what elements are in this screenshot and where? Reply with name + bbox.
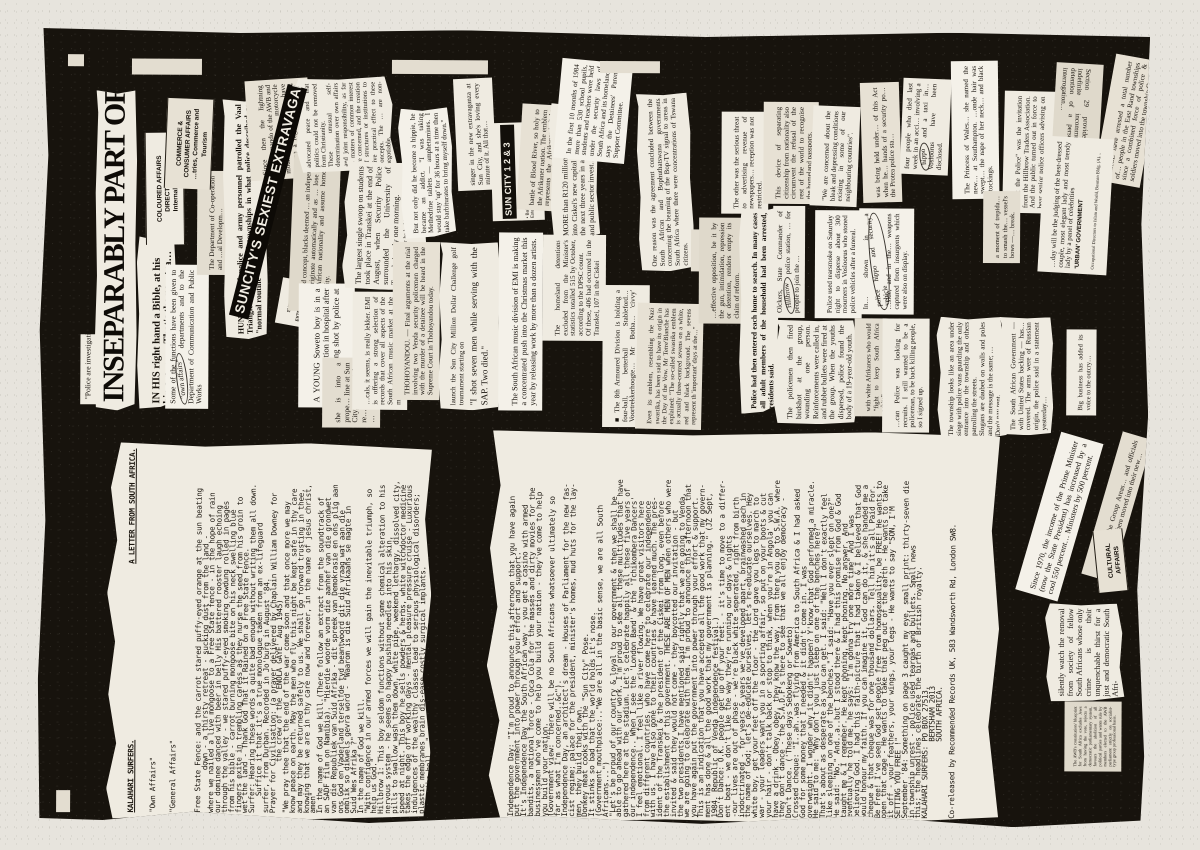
clipping-renders-empty: …effective opposition, be it by the gun,… [699, 217, 747, 323]
singer-extravaganza-text: singer in the new extravaganza at Sun Ci… [464, 83, 492, 186]
separating-citizenship-text: This device of separating citizenship fr… [774, 107, 814, 199]
letter-header: KALAHARI SURFERS.A LETTER FROM SOUTH AFR… [128, 448, 137, 812]
clipping-commerce-affairs-label: COMMERCE & CONSUMER AFFAIRS …tries, Comm… [164, 98, 214, 190]
thohoyandou-text: THOHOYANDOU. — Final arguments at the tr… [403, 247, 435, 395]
clipping-trepidation: a moment of trepida… to smash the… vesse… [983, 191, 1020, 263]
clipping-hippie-addict: But not only did he become a hippie, he … [397, 107, 456, 239]
advocated-peace-text: advocated peace and that politics could … [304, 81, 393, 167]
clipping-russian-arms: The South African Government — with Unit… [998, 317, 1054, 435]
clipping-olckers-hillbrow: Olckers, State Commander of Hillbrow pol… [773, 206, 806, 318]
suncity-123-bar: SUN CITY 1 2 & 3 [500, 125, 517, 219]
clipping-birdshot: The policemen then fired birdshot at the… [774, 320, 858, 424]
torn-scrap [600, 61, 660, 73]
clipping-cultural-affairs-label: CULTURAL AFFAIRS [1092, 528, 1128, 593]
clipping-main-headline: INSEPARABLY PART OF YOUR LIFE [94, 90, 138, 410]
letter-sub-general-affairs: "General Affairs" [170, 449, 179, 813]
russian-arms-text: The South African Government — with Unit… [1009, 322, 1048, 430]
we-are-concerned-text: "We are concerned about the bleak and de… [821, 111, 855, 202]
scanned-collage-page: { "artwork": { "headline": "INSEPARABLY … [0, 0, 1200, 850]
letter-band-name: KALAHARI SURFERS. [128, 740, 135, 813]
clipping-big-business: Big business has added its voice to the … [1066, 329, 1096, 415]
police-recruits-text: …can Police was looking for recruits. I … [893, 323, 925, 427]
clipping-best-dressed: …day will be the judging of the best-dre… [1037, 136, 1113, 276]
clipping-hippo-taxi: four people who died last week in an acc… [900, 78, 952, 176]
big-business-text: Big business has added its voice to the … [1077, 334, 1092, 410]
letter-part-1: KALAHARI SURFERS.A LETTER FROM SOUTH AFR… [106, 442, 432, 820]
clipping-bop-tv: One reason was the agreement concluded b… [635, 93, 695, 273]
urban-government-label: 'URBAN' GOVERNMENT [1075, 143, 1089, 269]
clipping-we-are-concerned: "We are concerned about the bleak and de… [810, 105, 861, 207]
torn-scrap [68, 54, 84, 66]
clipping-awb-constitution: The AWB's constitution/ blueprint for So… [1064, 701, 1122, 771]
golf-tournament-text: launch the Sun City Million Dollar Chall… [449, 247, 465, 405]
suncity-123-text: SUN CITY 1 2 & 3 [501, 142, 513, 216]
silently-watch-text: silently watch the removal from society … [1057, 608, 1120, 696]
clipping-police-recruits: …can Police was looking for recruits. I … [882, 318, 930, 432]
clipping-own-affairs-circled: Some of the functions have been given to… [165, 265, 208, 409]
clipping-township-siege: The township looks like an area under si… [936, 317, 1007, 441]
awb-constitution-text: The AWB's constitution/ blueprint for So… [1072, 706, 1117, 766]
township-siege-text: The township looks like an area under si… [947, 322, 1002, 436]
clipping-kicker: "Police are investigating." [80, 334, 97, 404]
commerce-affairs-text: COMMERCE & CONSUMER AFFAIRS …tries, Comm… [176, 109, 209, 180]
clipping-weapons-display: In… shown in a police hippo and security… [859, 208, 915, 314]
collage-black-canvas: KALAHARI SURFERS.A LETTER FROM SOUTH AFR… [36, 28, 1150, 828]
dept-cooperation-text: The Department of Co-operation and …al D… [208, 176, 224, 270]
first-10-months-text: In the first 10 months of 1984 more than… [565, 64, 625, 159]
torn-scrap [132, 58, 202, 74]
torn-scrap [56, 790, 70, 812]
homeland-detentions-text: The homeland detentions excluded from th… [553, 240, 601, 336]
clipping-first-10-months: In the first 10 months of 1984 more than… [553, 58, 633, 164]
clipping-emi-christmas: The South African music division of EMI … [498, 232, 543, 410]
headline-text: INSEPARABLY PART OF YOUR LIFE [97, 90, 132, 402]
cultural-affairs-text: CULTURAL AFFAIRS [1105, 543, 1123, 578]
clipping-protea-station: was being held under… of this Act when h… [860, 82, 903, 203]
trepidation-text: a moment of trepida… to smash the… vesse… [994, 196, 1016, 258]
emi-christmas-text: The South African music division of EMI … [510, 237, 538, 405]
renders-empty-text: …effective opposition, be it by the gun,… [709, 223, 741, 319]
clipping-thohoyandou: THOHOYANDOU. — Final arguments at the tr… [392, 242, 440, 400]
clipping-advertising-threat: The other was the serious threat to adve… [721, 112, 769, 214]
birdshot-text: The policemen then fired birdshot at the… [786, 325, 854, 419]
princess-wales-text: The Princess of Wales… she named the new… [962, 66, 995, 194]
clipping-swastika-emblem: Even its emblem, resembling the Nazi swa… [635, 303, 704, 430]
tearsmoke-text: Police used tearsmoke on Saturday night … [826, 215, 858, 313]
kicker-text: "Police are investigating." [83, 334, 92, 399]
clipping-advocated-peace: advocated peace and that politics could … [292, 76, 397, 173]
hippie-addict-text: But not only did he become a hippie, he … [408, 113, 451, 234]
east-rand-arrests-text: …LICE have arrested a total number of… p… [1105, 60, 1157, 182]
letter-title: A LETTER FROM SOUTH AFRICA. [129, 448, 136, 563]
clipping-tearsmoke: Police used tearsmoke on Saturday night … [815, 210, 863, 318]
occupational-directors-text: Occupational Directors to Islam and Worl… [1089, 144, 1101, 270]
advertising-threat-text: The other was the serious threat to adve… [732, 117, 764, 209]
hippo-circled-text: hippo [918, 148, 927, 165]
shot-seven-quote: "I shot seven men while serving with the… [469, 247, 490, 405]
clipping-shot-seven: launch the Sun City Million Dollar Chall… [438, 242, 501, 410]
clipping-princess-wales: The Princess of Wales… she named the new… [951, 61, 1000, 200]
entered-homes-text: Police had then entered each home to sea… [750, 213, 776, 409]
letter-part-2: Independence Day: "I'm proud to announce… [486, 430, 1000, 825]
bop-tv-text: One reason was the agreement concluded b… [646, 98, 690, 267]
swastika-emblem-text: Even its emblem, resembling the Nazi swa… [646, 308, 699, 425]
clipping-silently-watch: silently watch the removal from society … [1045, 603, 1125, 701]
letter-body-1: Free State Fence: and the carrot stared … [195, 449, 432, 814]
hillbrow-circled-text: Hillbrow [782, 282, 793, 308]
clipping-homeland-detentions: The homeland detentions excluded from th… [543, 235, 606, 341]
protea-station-text: was being held under… of this Act when h… [871, 87, 898, 197]
torn-scrap [392, 60, 488, 75]
letter-sub-own-affairs: "Own Affairs" [150, 449, 159, 813]
best-dressed-text: …day will be the judging of the best-dre… [1048, 141, 1076, 268]
letter-body-2: Independence Day: "I'm proud to announce… [508, 436, 959, 818]
